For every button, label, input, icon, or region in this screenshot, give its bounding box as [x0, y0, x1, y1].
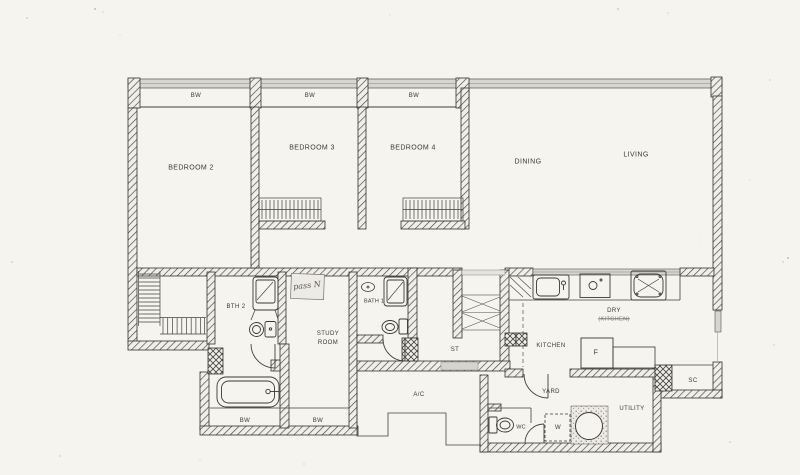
label-bath-1: BATH 1: [364, 299, 384, 305]
laundry-tub-icon: [571, 406, 608, 444]
label-bedroom-2: BEDROOM 2: [168, 165, 214, 172]
wc-toilet-icon: [489, 417, 514, 433]
label-bedroom-3: BEDROOM 3: [289, 145, 335, 152]
label-study-room-line2: ROOM: [318, 340, 338, 346]
label-dry: DRY: [607, 308, 621, 314]
label-bath-2: BTH 2: [226, 304, 245, 310]
bedroom3-louver: [259, 198, 321, 221]
bathtub-icon: [217, 377, 279, 407]
label-sc: SC: [688, 378, 697, 384]
label-bw-top-bedroom2: BW: [191, 93, 201, 99]
label-dry-kitchen: (KITCHEN): [598, 317, 629, 323]
bath2-toilet-icon: [250, 322, 277, 338]
planter-ladder: [139, 271, 207, 334]
plan-linework: [0, 0, 800, 475]
counter-drainer-icon: [510, 277, 531, 297]
label-dining: DINING: [515, 159, 542, 166]
fridge-icon: [581, 338, 655, 368]
label-wc: WC: [516, 425, 526, 431]
floor-plan: BW BW BW BEDROOM 2 BEDROOM 3 BEDROOM 4 D…: [0, 0, 800, 475]
label-bw-top-bedroom3: BW: [305, 93, 315, 99]
kitchen-sink-icon: [533, 275, 569, 299]
label-yard: YARD: [542, 389, 560, 395]
bedroom4-louver: [403, 198, 463, 221]
label-bw-bottom-study: BW: [313, 418, 323, 424]
label-study-room-line1: STUDY: [317, 331, 339, 337]
label-living: LIVING: [623, 152, 648, 159]
kitchen-basin-icon: [580, 274, 610, 298]
label-bw-top-bedroom4: BW: [409, 93, 419, 99]
store-shelves: [462, 295, 500, 330]
bath1-toilet-icon: [382, 319, 408, 334]
label-bw-bottom-bath: BW: [240, 418, 250, 424]
bath2-shower-icon: [251, 277, 278, 320]
label-bedroom-4: BEDROOM 4: [390, 145, 436, 152]
label-washer: W: [555, 425, 561, 431]
bath1-basin-icon: [362, 283, 375, 292]
label-store: ST: [451, 347, 459, 353]
top-facade-wall: [128, 79, 722, 107]
label-ac-ledge: A/C: [413, 392, 424, 398]
stove-icon: [631, 271, 666, 300]
label-utility: UTILITY: [619, 406, 644, 412]
label-kitchen: KITCHEN: [536, 343, 565, 349]
bath1-shower-icon: [384, 277, 407, 306]
label-fridge: F: [594, 350, 599, 357]
